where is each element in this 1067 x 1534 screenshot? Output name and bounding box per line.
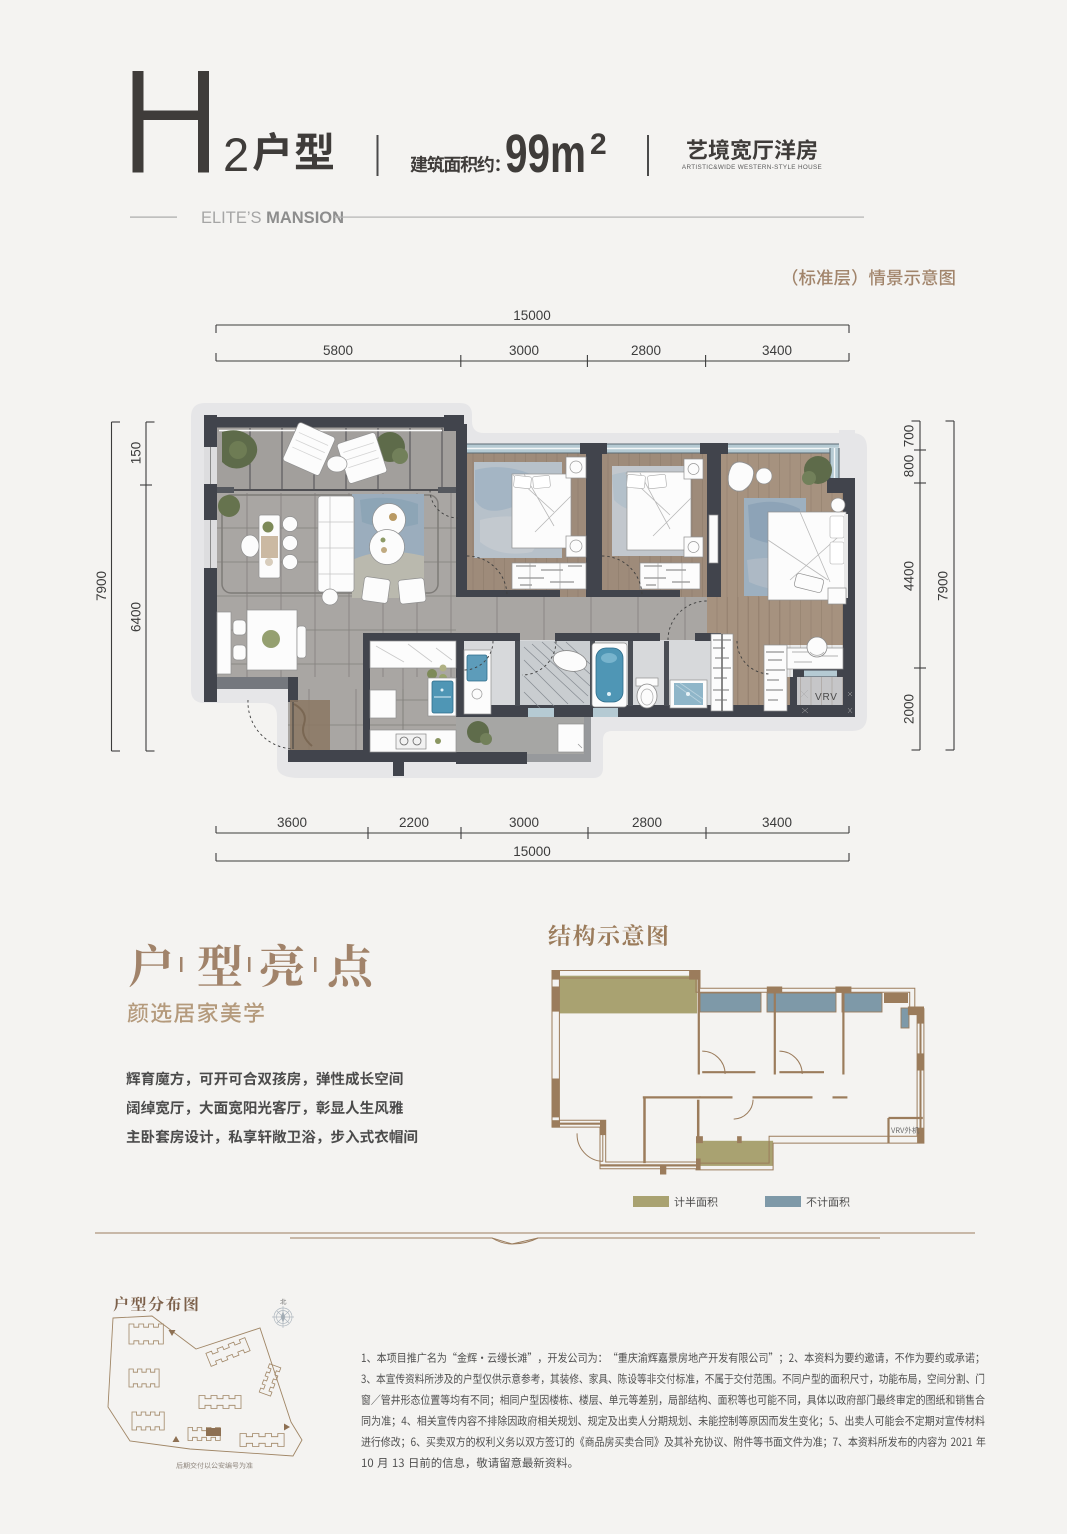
svg-text:VRV: VRV xyxy=(815,692,838,703)
svg-text:15000: 15000 xyxy=(513,844,551,859)
svg-text:ARTISTIC&WIDE WESTERN-STYLE HO: ARTISTIC&WIDE WESTERN-STYLE HOUSE xyxy=(682,164,822,171)
svg-text:6400: 6400 xyxy=(129,602,144,632)
svg-text:2800: 2800 xyxy=(631,343,661,358)
svg-text:7900: 7900 xyxy=(94,571,109,601)
svg-text:2: 2 xyxy=(590,128,607,161)
svg-text:3400: 3400 xyxy=(762,343,792,358)
svg-text:150: 150 xyxy=(129,442,144,465)
svg-text:3400: 3400 xyxy=(762,815,792,830)
svg-text:2000: 2000 xyxy=(902,694,917,724)
svg-text:15000: 15000 xyxy=(513,308,551,323)
svg-text:ELITE’S MANSION: ELITE’S MANSION xyxy=(201,209,344,227)
svg-text:3000: 3000 xyxy=(509,815,539,830)
svg-text:7900: 7900 xyxy=(936,571,951,601)
svg-text:700: 700 xyxy=(902,425,917,448)
svg-text:4400: 4400 xyxy=(902,561,917,591)
svg-text:2800: 2800 xyxy=(632,815,662,830)
svg-text:5800: 5800 xyxy=(323,343,353,358)
svg-text:2: 2 xyxy=(223,128,249,181)
svg-text:2200: 2200 xyxy=(399,815,429,830)
svg-text:3600: 3600 xyxy=(277,815,307,830)
svg-text:3000: 3000 xyxy=(509,343,539,358)
svg-text:99m: 99m xyxy=(505,124,586,184)
svg-text:800: 800 xyxy=(902,455,917,478)
